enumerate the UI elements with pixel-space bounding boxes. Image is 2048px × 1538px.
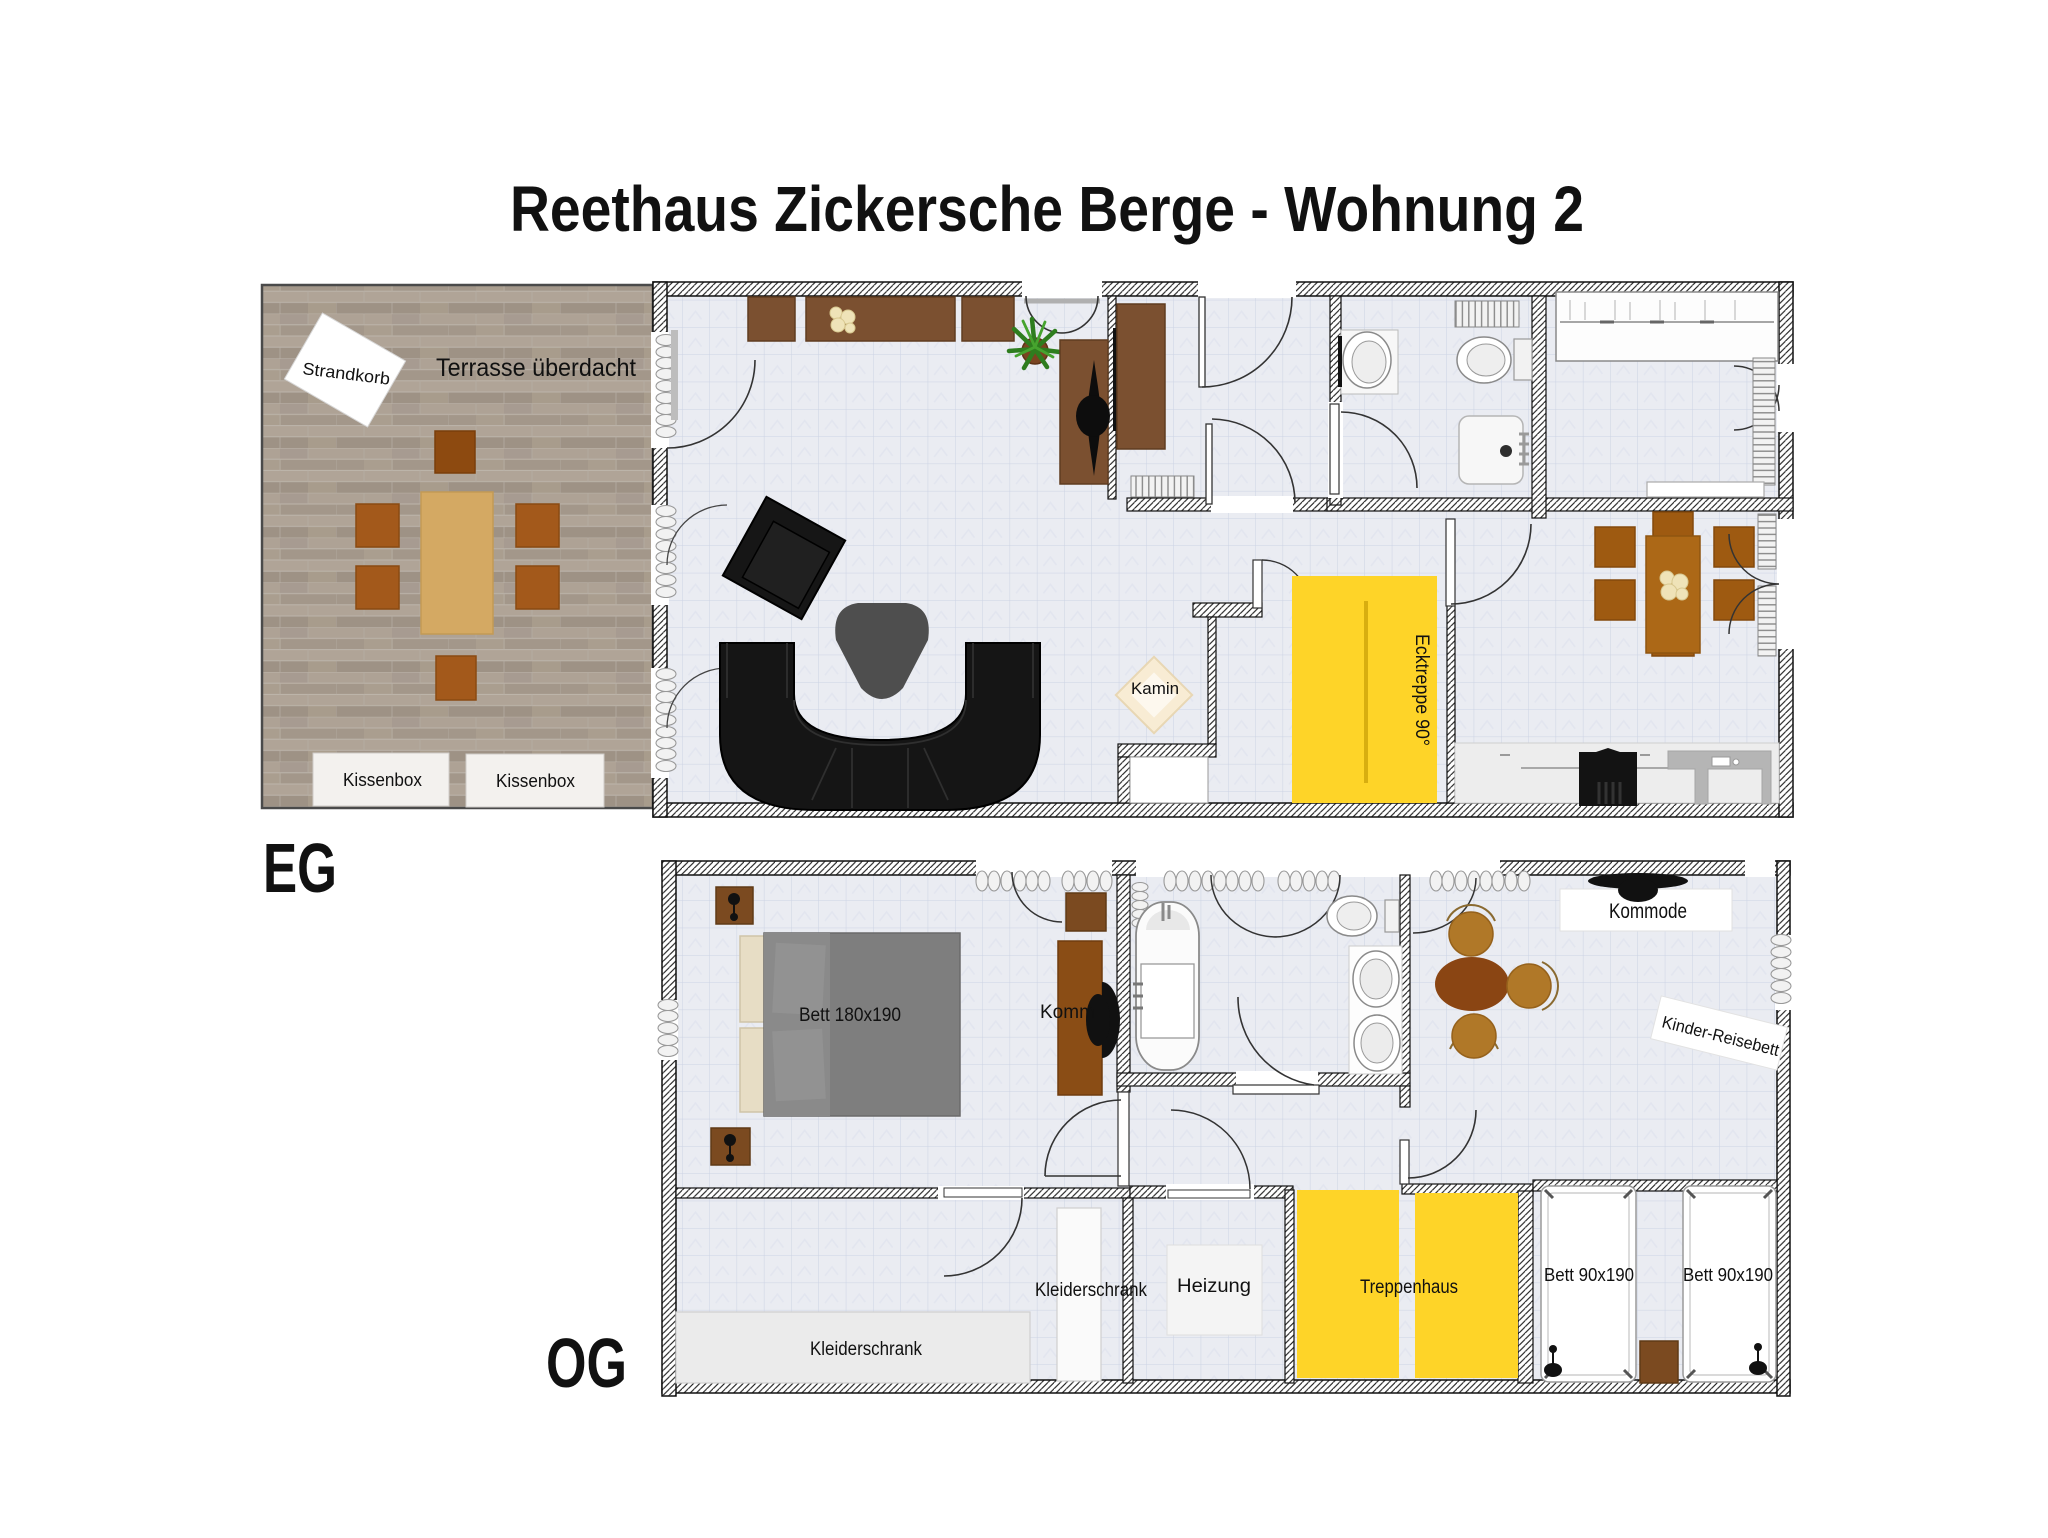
svg-text:Kommode: Kommode [1609,900,1687,923]
svg-text:Bett 90x190: Bett 90x190 [1544,1265,1634,1285]
svg-text:Kissenbox: Kissenbox [343,770,422,790]
svg-text:Komm: Komm [1040,1002,1095,1023]
svg-text:Heizung: Heizung [1177,1276,1251,1297]
svg-text:Kleiderschrank: Kleiderschrank [810,1339,922,1360]
svg-text:Kleiderschrank: Kleiderschrank [1035,1280,1147,1301]
svg-text:Bett 180x190: Bett 180x190 [799,1005,901,1026]
svg-text:Kissenbox: Kissenbox [496,771,575,791]
svg-text:Ecktreppe 90°: Ecktreppe 90° [1411,634,1432,746]
svg-text:Kamin: Kamin [1131,679,1179,698]
svg-text:Bett 90x190: Bett 90x190 [1683,1265,1773,1285]
svg-text:EG: EG [263,829,337,907]
svg-text:OG: OG [546,1324,627,1402]
svg-text:Terrasse überdacht: Terrasse überdacht [436,354,636,382]
svg-text:Reethaus Zickersche Berge - Wo: Reethaus Zickersche Berge - Wohnung 2 [510,173,1584,245]
svg-text:Treppenhaus: Treppenhaus [1360,1277,1458,1298]
